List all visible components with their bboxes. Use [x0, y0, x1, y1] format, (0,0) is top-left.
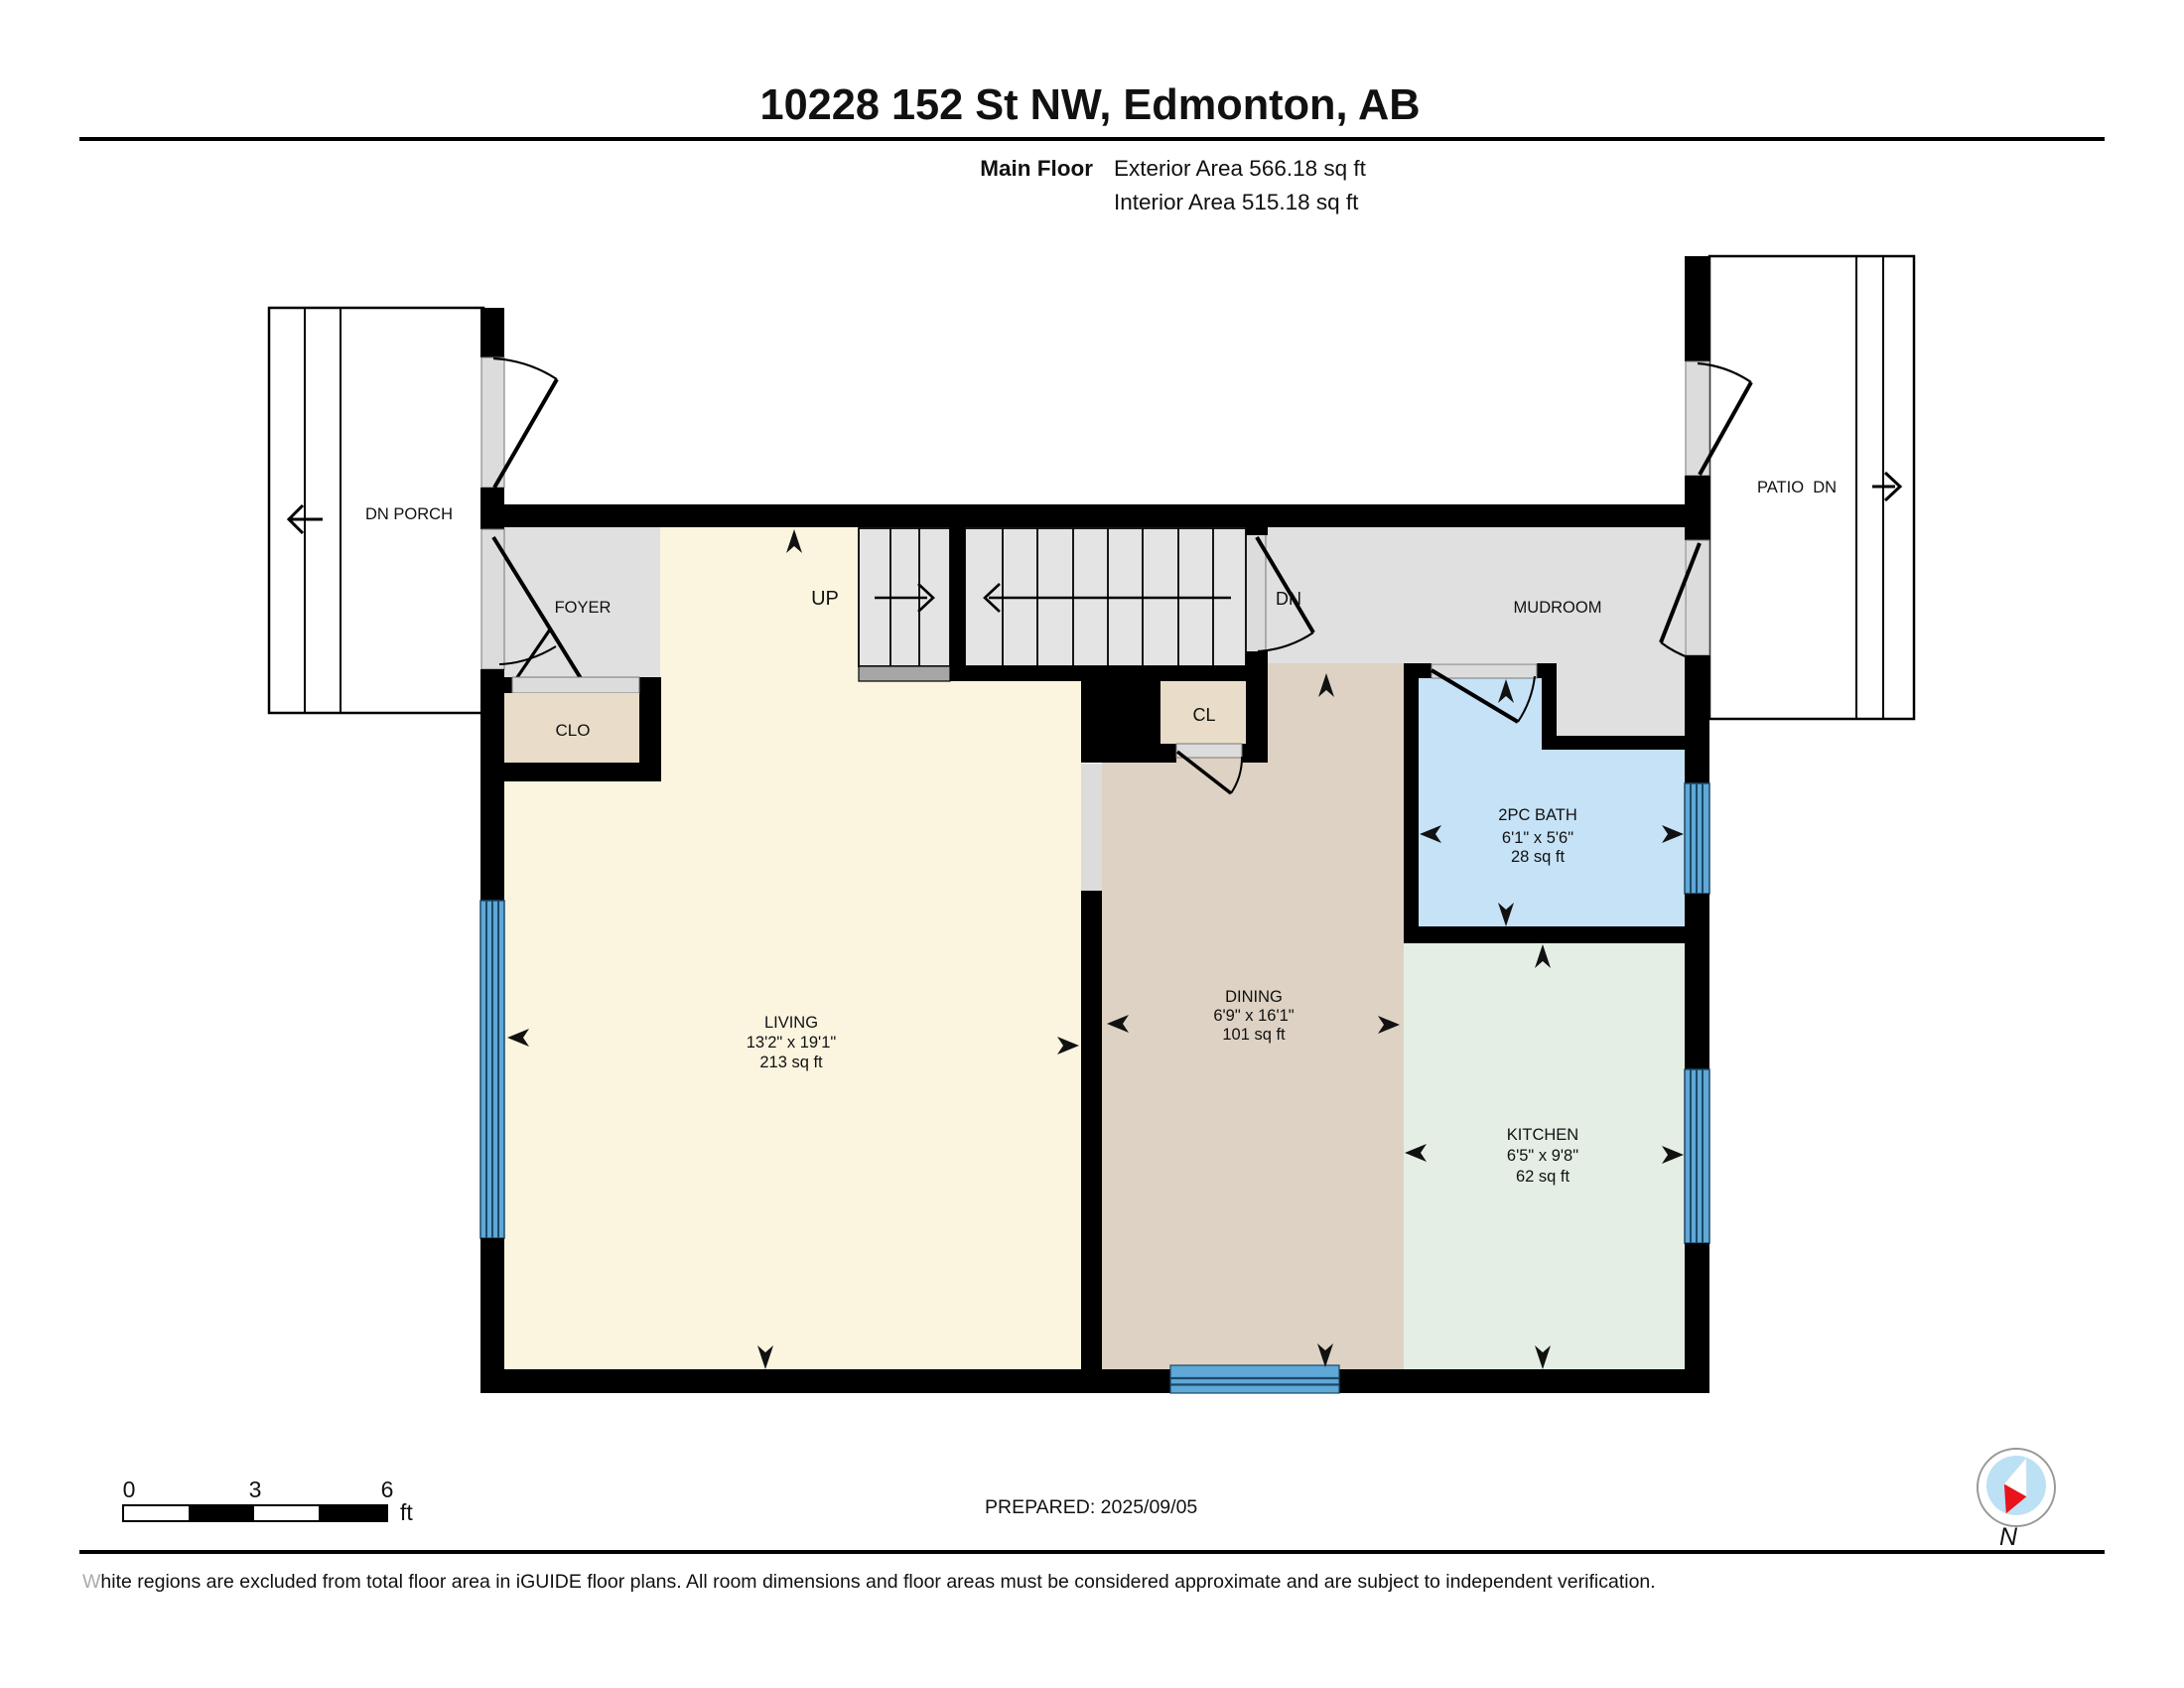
svg-text:213 sq ft: 213 sq ft	[759, 1054, 823, 1071]
svg-text:10228 152 St NW, Edmonton, AB: 10228 152 St NW, Edmonton, AB	[760, 80, 1421, 129]
svg-text:DINING: DINING	[1225, 988, 1283, 1006]
svg-text:UP: UP	[811, 588, 839, 610]
svg-text:6'9" x 16'1": 6'9" x 16'1"	[1213, 1007, 1294, 1025]
svg-text:CL: CL	[1192, 705, 1215, 725]
svg-text:CLO: CLO	[556, 721, 591, 740]
svg-text:DN PORCH: DN PORCH	[365, 505, 453, 523]
svg-text:MUDROOM: MUDROOM	[1514, 599, 1602, 617]
svg-text:28 sq ft: 28 sq ft	[1511, 848, 1566, 866]
svg-text:6'5" x 9'8": 6'5" x 9'8"	[1507, 1147, 1578, 1165]
svg-text:LIVING: LIVING	[764, 1014, 818, 1032]
svg-text:PATIO DN: PATIO DN	[1757, 479, 1837, 496]
svg-text:6'1" x 5'6": 6'1" x 5'6"	[1502, 829, 1573, 847]
svg-text:3: 3	[249, 1477, 262, 1502]
svg-text:KITCHEN: KITCHEN	[1507, 1126, 1578, 1144]
svg-text:N: N	[1999, 1523, 2018, 1551]
svg-text:2PC BATH: 2PC BATH	[1498, 806, 1576, 824]
svg-text:DN: DN	[1276, 589, 1301, 609]
svg-text:Main Floor: Main Floor	[980, 156, 1093, 181]
svg-text:62 sq ft: 62 sq ft	[1516, 1168, 1570, 1186]
svg-text:13'2" x 19'1": 13'2" x 19'1"	[747, 1034, 837, 1052]
svg-text:ft: ft	[400, 1499, 413, 1525]
svg-text:Interior Area 515.18 sq ft: Interior Area 515.18 sq ft	[1114, 190, 1359, 214]
svg-text:0: 0	[123, 1477, 136, 1502]
svg-text:White regions are excluded fro: White regions are excluded from total fl…	[82, 1571, 1656, 1593]
svg-text:FOYER: FOYER	[555, 599, 612, 617]
svg-text:PREPARED: 2025/09/05: PREPARED: 2025/09/05	[985, 1496, 1197, 1518]
svg-text:Exterior Area 566.18 sq ft: Exterior Area 566.18 sq ft	[1114, 156, 1367, 181]
svg-text:6: 6	[381, 1477, 394, 1502]
svg-text:101 sq ft: 101 sq ft	[1222, 1026, 1286, 1044]
